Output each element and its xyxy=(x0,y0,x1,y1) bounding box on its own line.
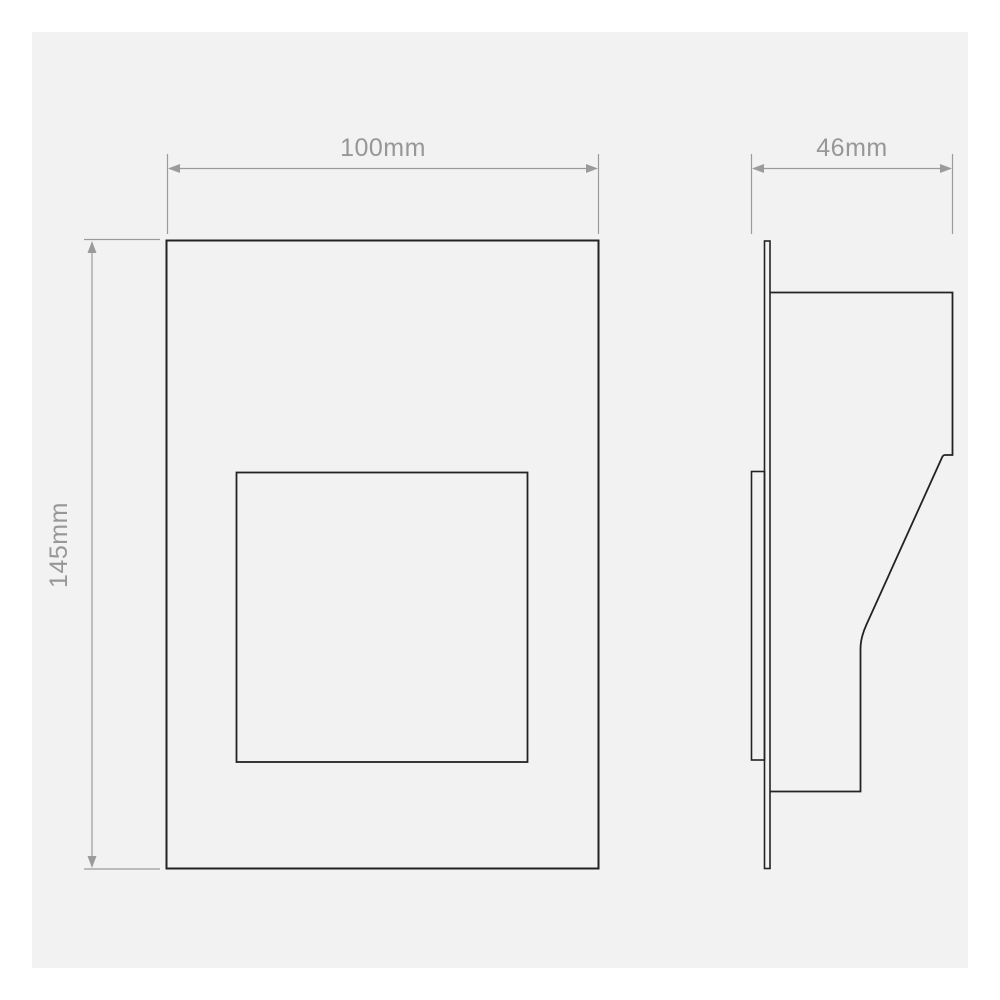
arrow-left-icon xyxy=(168,164,180,173)
front-view xyxy=(167,241,599,869)
arrow-left-icon xyxy=(752,164,764,173)
side-faceplate xyxy=(765,241,771,869)
front-outer-panel xyxy=(167,241,599,869)
width-dimension-label: 100mm xyxy=(340,134,426,162)
front-inner-aperture xyxy=(237,473,528,763)
side-body-profile xyxy=(770,293,953,792)
arrow-right-icon xyxy=(940,164,952,173)
arrow-up-icon xyxy=(88,241,97,253)
depth-dimension: 46mm xyxy=(752,134,953,234)
page: 100mm 145mm 46mm xyxy=(0,0,1000,1000)
arrow-right-icon xyxy=(586,164,598,173)
width-dimension: 100mm xyxy=(168,134,599,234)
side-view xyxy=(752,241,953,869)
height-dimension-label: 145mm xyxy=(45,502,73,588)
arrow-down-icon xyxy=(88,856,97,868)
side-back-box xyxy=(752,472,765,761)
height-dimension: 145mm xyxy=(45,240,160,870)
dimension-drawing: 100mm 145mm 46mm xyxy=(0,0,1000,1000)
depth-dimension-label: 46mm xyxy=(816,134,887,162)
